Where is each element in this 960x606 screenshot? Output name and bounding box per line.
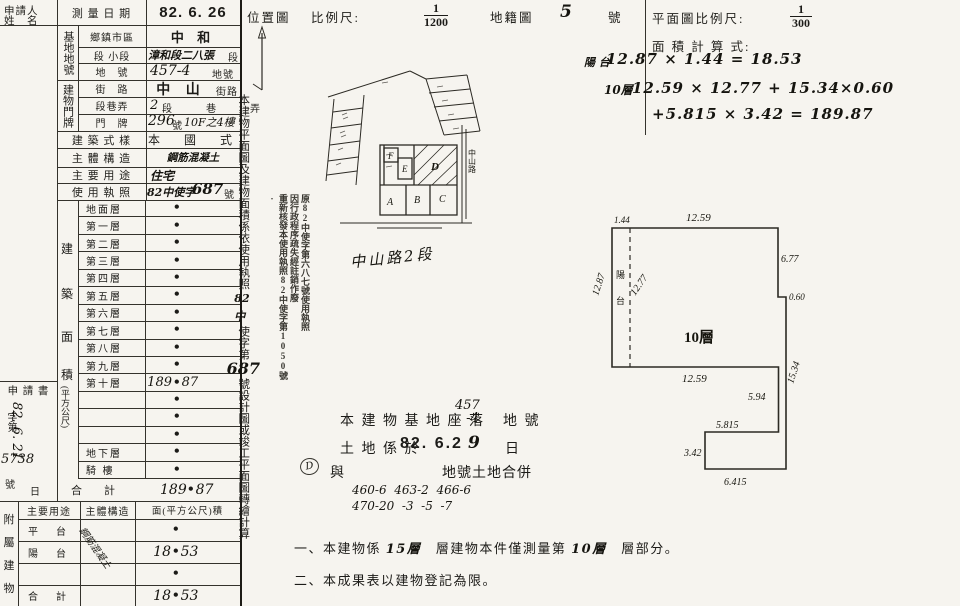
map-label-f: F [387,151,394,161]
map-label-a: A [386,197,394,208]
application-number: 5738 [1,452,34,467]
plan-floor-label: 10層 [684,329,714,346]
addr-row-label: 門 牌 [79,114,145,131]
floor-row: 地面層• [79,200,240,217]
map-road-name-vertical: 中山路 [468,148,477,173]
site-row-suffix: 段 [228,49,239,64]
license-reissue-stamp: 原82中使字第六八七號使用執照 因行政程序疏失經註銷作廢 重新核發本使用執照82… [266,194,310,382]
floor-row: • [79,409,240,426]
north-arrow-icon [250,26,272,96]
plan-scale-value: 1300 [790,3,812,29]
scale-label: 比例尺: [311,7,360,26]
floor-row: 第八層• [79,340,240,357]
decimal-dot: • [174,286,180,304]
structure-label: 主 體 構 造 [57,148,146,167]
dim-right-upper: 6.77 [781,254,800,265]
annex-header-area: 面(平方公尺)積 [135,501,240,519]
base-note-line1-suffix: 地 號 [503,410,541,430]
annex-row-use: 合 計 [18,585,80,606]
site-row-value: 457-4 [150,63,190,79]
stamp-column: 重新核發本使用執照82中使字第1050號· [266,194,288,382]
dim-bottom: 12.59 [682,373,707,385]
usage-value: 住宅 [150,167,174,184]
usage-label: 主 要 用 途 [57,167,146,183]
addr-row-label: 街 路 [79,80,145,97]
floor-plan-drawing: 1.44 12.59 6.77 0.60 12.87 12.77 陽 台 10層… [588,208,823,493]
calc-line3: +5.815 × 3.42 = 189.87 [652,105,874,123]
addr-row-suffix: 號 [172,117,183,132]
note-line-1: 一、本建物係 15層 層建物本件僅測量第 10層 層部分。 [294,538,679,557]
style-label: 建 築 式 樣 [57,131,146,148]
floor-row: 騎 樓• [79,462,240,479]
floor-area-table: 地面層• 第一層• 第二層• 第三層• 第四層• 第五層• 第六層• 第七層• … [78,200,240,479]
site-group-label: 基地地號 [58,26,77,80]
annex-row-use: 陽 台 [18,541,80,563]
license-prefix: 82中使字 [147,184,195,200]
map-label-b: B [414,195,420,206]
dim-tail-left: 3.42 [683,448,702,459]
floor-row: 第一層• [79,217,240,234]
decimal-dot: • [174,234,180,252]
note-line-2: 二、本成果表以建物登記為限。 [294,570,497,589]
calc-line1: 12.87 × 1.44 = 18.53 [606,50,803,68]
cadastral-map-number: 5 [560,2,572,22]
application-label: 申 請 書 [0,383,57,397]
address-group-label: 建物門牌 [58,82,77,130]
decimal-dot: • [174,217,180,235]
decimal-dot: • [173,565,179,583]
floor-row: 第二層• [79,235,240,252]
application-day-label: 日 [30,483,41,498]
floor-area-group-char: 積 [61,366,73,383]
floor-row: • [79,427,240,444]
decimal-dot: • [174,374,180,392]
addr-row-value: 中 山 [146,80,216,97]
floor-row: 第四層• [79,270,240,287]
site-row-label: 鄉鎮市區 [79,25,145,47]
dim-right-strip: 15.34 [785,360,802,385]
site-row-value: 中 和 [146,25,240,47]
survey-date-label: 測 量 日 期 [57,0,146,25]
floor-area-unit: (平方公尺) [59,386,72,476]
annex-row-use: 平 台 [18,519,80,541]
annex-header-structure: 主體構造 [80,501,135,519]
decimal-dot: • [174,339,180,357]
applicant-label-line2: 姓 名 [4,13,39,28]
floor-row: 第三層• [79,252,240,269]
license-label: 使 用 執 照 [57,183,146,200]
stamp-column: 原82中使字第六八七號使用執照 [299,194,310,382]
decimal-dot: • [173,587,179,605]
decimal-dot: • [174,356,180,374]
floor-row: 第七層• [79,322,240,339]
floor-area-group-char: 築 [61,285,73,302]
annex-row-area: 18•53 [135,541,240,563]
annex-row-area: 18•53 [135,585,240,606]
application-hao-label: 號 [5,476,16,491]
dim-tail-bottom: 6.415 [724,477,747,488]
decimal-dot: • [174,391,180,409]
dim-left: 12.87 [590,271,608,297]
site-row-value: 漳和段二八張 [148,47,228,63]
addr-row-value: 2 [150,98,158,113]
annex-row-area: • [135,519,240,541]
floor-row: 地下層• [79,444,240,461]
floor-row: 第五層• [79,287,240,304]
annex-group-label: 附屬建物 [0,503,18,606]
decimal-dot: • [188,481,194,499]
floor-area-group-char: 面 [61,328,73,345]
base-note-lot-number: 457-4 [455,399,480,425]
survey-form-sheet: 申請人 姓 名 測 量 日 期 82. 6. 26 基地地號 鄉鎮市區 中 和 … [0,0,960,606]
floor-total-label: 合 計 [57,479,160,501]
location-map-title: 位置圖 [247,7,291,26]
decimal-dot: • [174,321,180,339]
dim-inner-left: 12.77 [628,272,650,298]
map-label-e: E [401,164,408,174]
decimal-dot: • [174,461,180,479]
decimal-dot: • [174,252,180,270]
dim-top: 12.59 [686,212,711,224]
dim-tail-right: 5.94 [748,392,766,403]
site-row-label: 段 小段 [79,47,145,63]
map-label-c: C [439,194,446,205]
survey-date-value: 82. 6. 26 [146,0,240,25]
calc-line2: 12.59 × 12.77 + 15.34×0.60 [632,79,894,97]
annex-row-area: • [135,563,240,585]
floor-area-group-char: 建 [61,240,73,257]
base-note-line3-suffix: 地號土地合併 [442,462,532,482]
decimal-dot: • [174,426,180,444]
floor-row: 第六層• [79,305,240,322]
cadastral-map-label: 地籍圖 [490,7,534,26]
dim-tail-top: 5.815 [716,420,739,431]
style-value: 本 國 式 [146,131,240,148]
map-label-d: D [430,161,439,173]
dim-step: 0.60 [789,292,805,302]
note-floor-measured: 10層 [571,542,607,557]
floor-total-row: 合 計 189•87 [57,479,240,501]
floor-row: 第十層189•87 [79,374,240,391]
dim-balcony-width: 1.44 [614,215,630,225]
structure-value: 鋼筋混凝土 [146,148,240,167]
decimal-dot: • [174,199,180,217]
stamp-column: 因行政程序疏失經註銷作廢 [288,194,299,382]
base-note-day: 日 [505,438,519,458]
location-map-scale: 11200 [424,2,448,28]
site-row-suffix: 地號 [212,66,234,81]
decimal-dot: • [174,443,180,461]
side-note-vertical: 本建物平面圖及建物面積係依使用執照82中使字第687號設計圖或竣工平面圖轉繪計算 [242,94,260,564]
balcony-char-2: 台 [616,295,625,306]
decimal-dot: • [174,408,180,426]
circled-d-mark: D [299,456,321,476]
floor-row: 第九層• [79,357,240,374]
side-note-hand-number: 687 [227,360,260,378]
note-floors-total: 15層 [386,542,422,557]
decimal-dot: • [173,521,179,539]
addr-row-value: 296 [148,113,175,129]
license-number: 687 [192,180,223,198]
addr-row-label: 段巷弄 [79,97,145,114]
site-row-label: 地 號 [79,63,145,80]
hao-label: 號 [608,7,622,26]
plan-scale-label: 平面圖比例尺: [652,8,744,27]
decimal-dot: • [174,304,180,322]
side-note-hand-year: 82中 [234,290,252,326]
base-note-line3: 與 [330,462,344,482]
decimal-dot: • [173,543,179,561]
decimal-dot: • [174,269,180,287]
calc-line2-label: 10層 [604,81,633,98]
annex-header-use: 主要用途 [18,501,80,519]
balcony-char-1: 陽 [616,270,625,280]
floor-row: • [79,392,240,409]
